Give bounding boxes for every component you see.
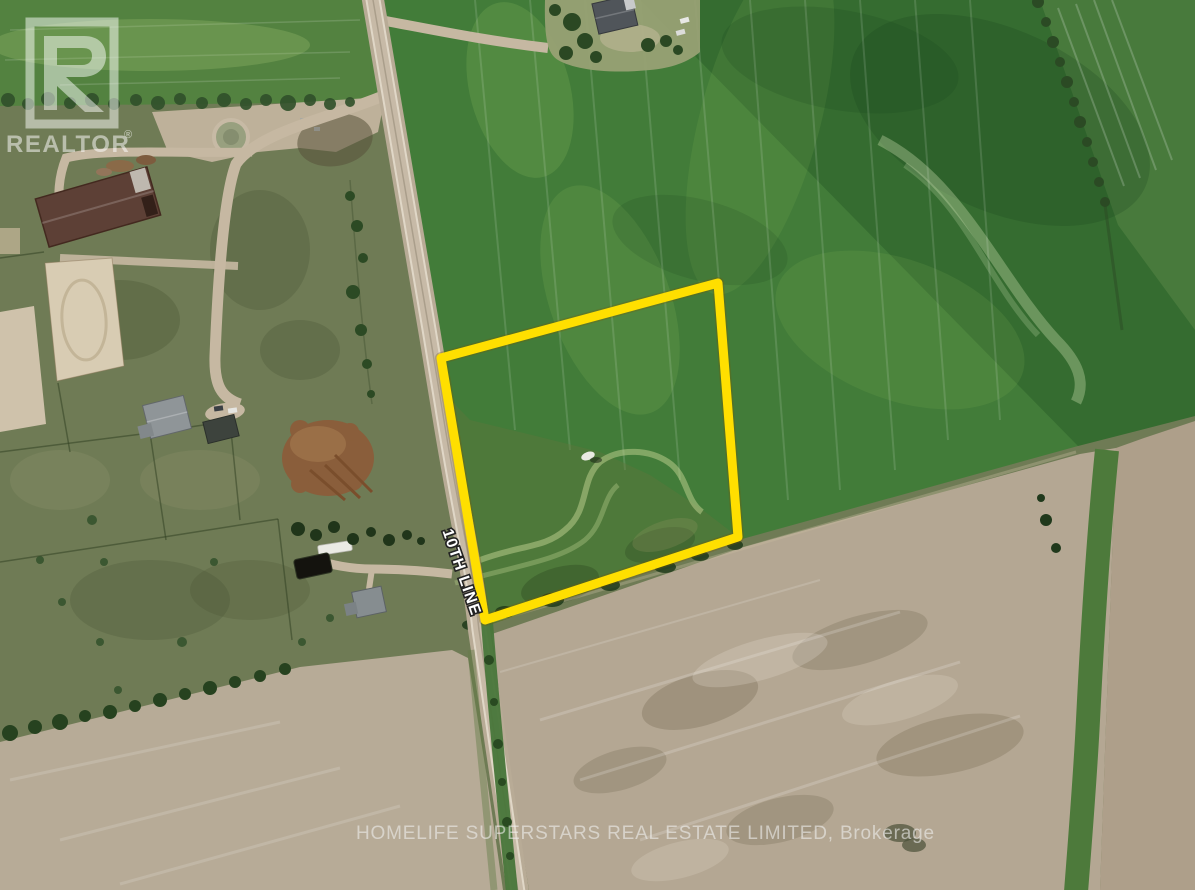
realtor-wordmark: REALTOR — [6, 131, 130, 158]
registered-symbol: ® — [124, 129, 132, 141]
satellite-image: 10TH LINE REALTOR ® HOMELIFE SUPERSTARS … — [0, 0, 1195, 890]
riding-arena — [45, 258, 124, 381]
brokerage-watermark: HOMELIFE SUPERSTARS REAL ESTATE LIMITED,… — [356, 823, 935, 844]
aerial-listing-photo: 10TH LINE REALTOR ® HOMELIFE SUPERSTARS … — [0, 0, 1195, 890]
